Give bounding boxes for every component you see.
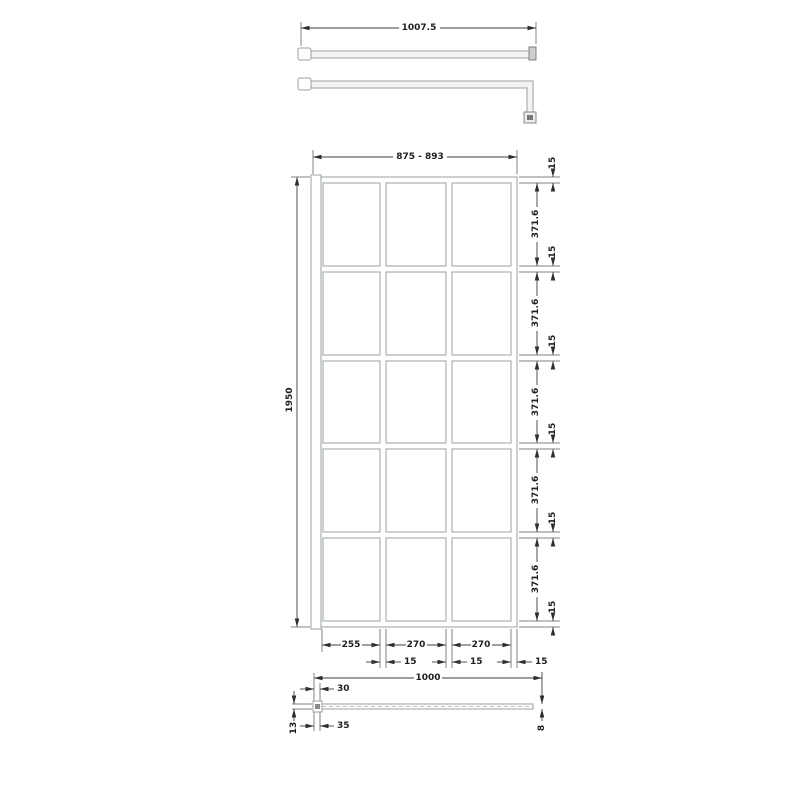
glass-pane (323, 183, 380, 266)
glass-pane (452, 449, 511, 532)
dim-pane-heights: 371.6 371.6 371.6 371.6 371.6 (531, 183, 542, 621)
support-bar (300, 51, 536, 58)
glass-pane (452, 538, 511, 621)
dim-label-rail-thickness: 15 (548, 157, 558, 170)
glass-pane (386, 449, 446, 532)
technical-drawing-canvas: 1007.5 (0, 0, 800, 800)
glass-pane-grid (323, 183, 511, 621)
dim-label-col2-width: 270 (407, 640, 426, 650)
dim-label-pane-height: 371.6 (531, 565, 541, 593)
dim-label-rail-thickness: 15 (548, 601, 558, 614)
support-bar-plan (300, 81, 533, 112)
glass-pane (386, 538, 446, 621)
dim-label-rail-thickness: 15 (548, 423, 558, 436)
glass-pane (386, 361, 446, 443)
dim-label-mullion-thickness: 15 (470, 657, 483, 667)
dim-label-rail-thickness: 15 (548, 335, 558, 348)
dim-label-support-bar-length: 1007.5 (402, 23, 437, 33)
glass-pane (386, 272, 446, 355)
dim-label-rail-thickness: 15 (548, 512, 558, 525)
dim-overall-height: 1950 (285, 177, 310, 627)
dim-label-glass-width: 875 - 893 (396, 152, 444, 162)
support-bar-wall-fitting (298, 48, 311, 60)
dim-label-glass-thickness: 8 (537, 725, 547, 731)
dim-label-profile-top: 30 (337, 684, 350, 694)
dim-profile-top: 30 (300, 684, 350, 694)
dim-label-mullion-thickness: 15 (404, 657, 417, 667)
screen-front-view (311, 175, 517, 629)
dim-profile-depth: 13 (289, 691, 312, 734)
dim-profile-bottom: 35 (300, 721, 350, 731)
dim-mullion-thicknesses: 15 15 15 (366, 657, 548, 667)
glass-pane (452, 272, 511, 355)
dim-rail-thicknesses: 15 15 15 15 15 15 (548, 157, 558, 635)
dim-label-pane-height: 371.6 (531, 299, 541, 327)
dim-label-pane-height: 371.6 (531, 476, 541, 504)
dim-overall-width: 1000 (314, 672, 542, 684)
dim-label-col1-width: 255 (342, 640, 361, 650)
support-bar-plan-wall-fitting (298, 78, 311, 90)
dim-label-stile-thickness: 15 (535, 657, 548, 667)
glass-pane (323, 538, 380, 621)
glass-pane (323, 449, 380, 532)
dim-label-pane-height: 371.6 (531, 388, 541, 416)
support-bar-front-view (298, 47, 536, 60)
dim-column-widths: 255 270 270 (322, 639, 511, 651)
support-bar-plan-view (298, 78, 536, 123)
dim-label-col3-width: 270 (472, 640, 491, 650)
glass-clamp-slot (527, 115, 533, 120)
glass-pane (452, 183, 511, 266)
glass-pane (386, 183, 446, 266)
glass-pane (323, 361, 380, 443)
dim-label-overall-width: 1000 (415, 673, 440, 683)
dim-glass-width: 875 - 893 (313, 150, 517, 174)
dim-support-bar-length: 1007.5 (301, 22, 536, 46)
dim-label-overall-height: 1950 (285, 387, 295, 412)
glass-pane (323, 272, 380, 355)
dim-label-profile-depth: 13 (289, 722, 299, 735)
support-bar-end-fitting (529, 47, 536, 60)
dim-label-pane-height: 371.6 (531, 210, 541, 238)
wall-profile (311, 175, 321, 629)
dim-label-rail-thickness: 15 (548, 246, 558, 259)
dim-glass-thickness: 8 (537, 672, 547, 731)
dim-label-profile-bottom: 35 (337, 721, 350, 731)
glass-pane (452, 361, 511, 443)
wall-profile-channel (315, 704, 320, 709)
